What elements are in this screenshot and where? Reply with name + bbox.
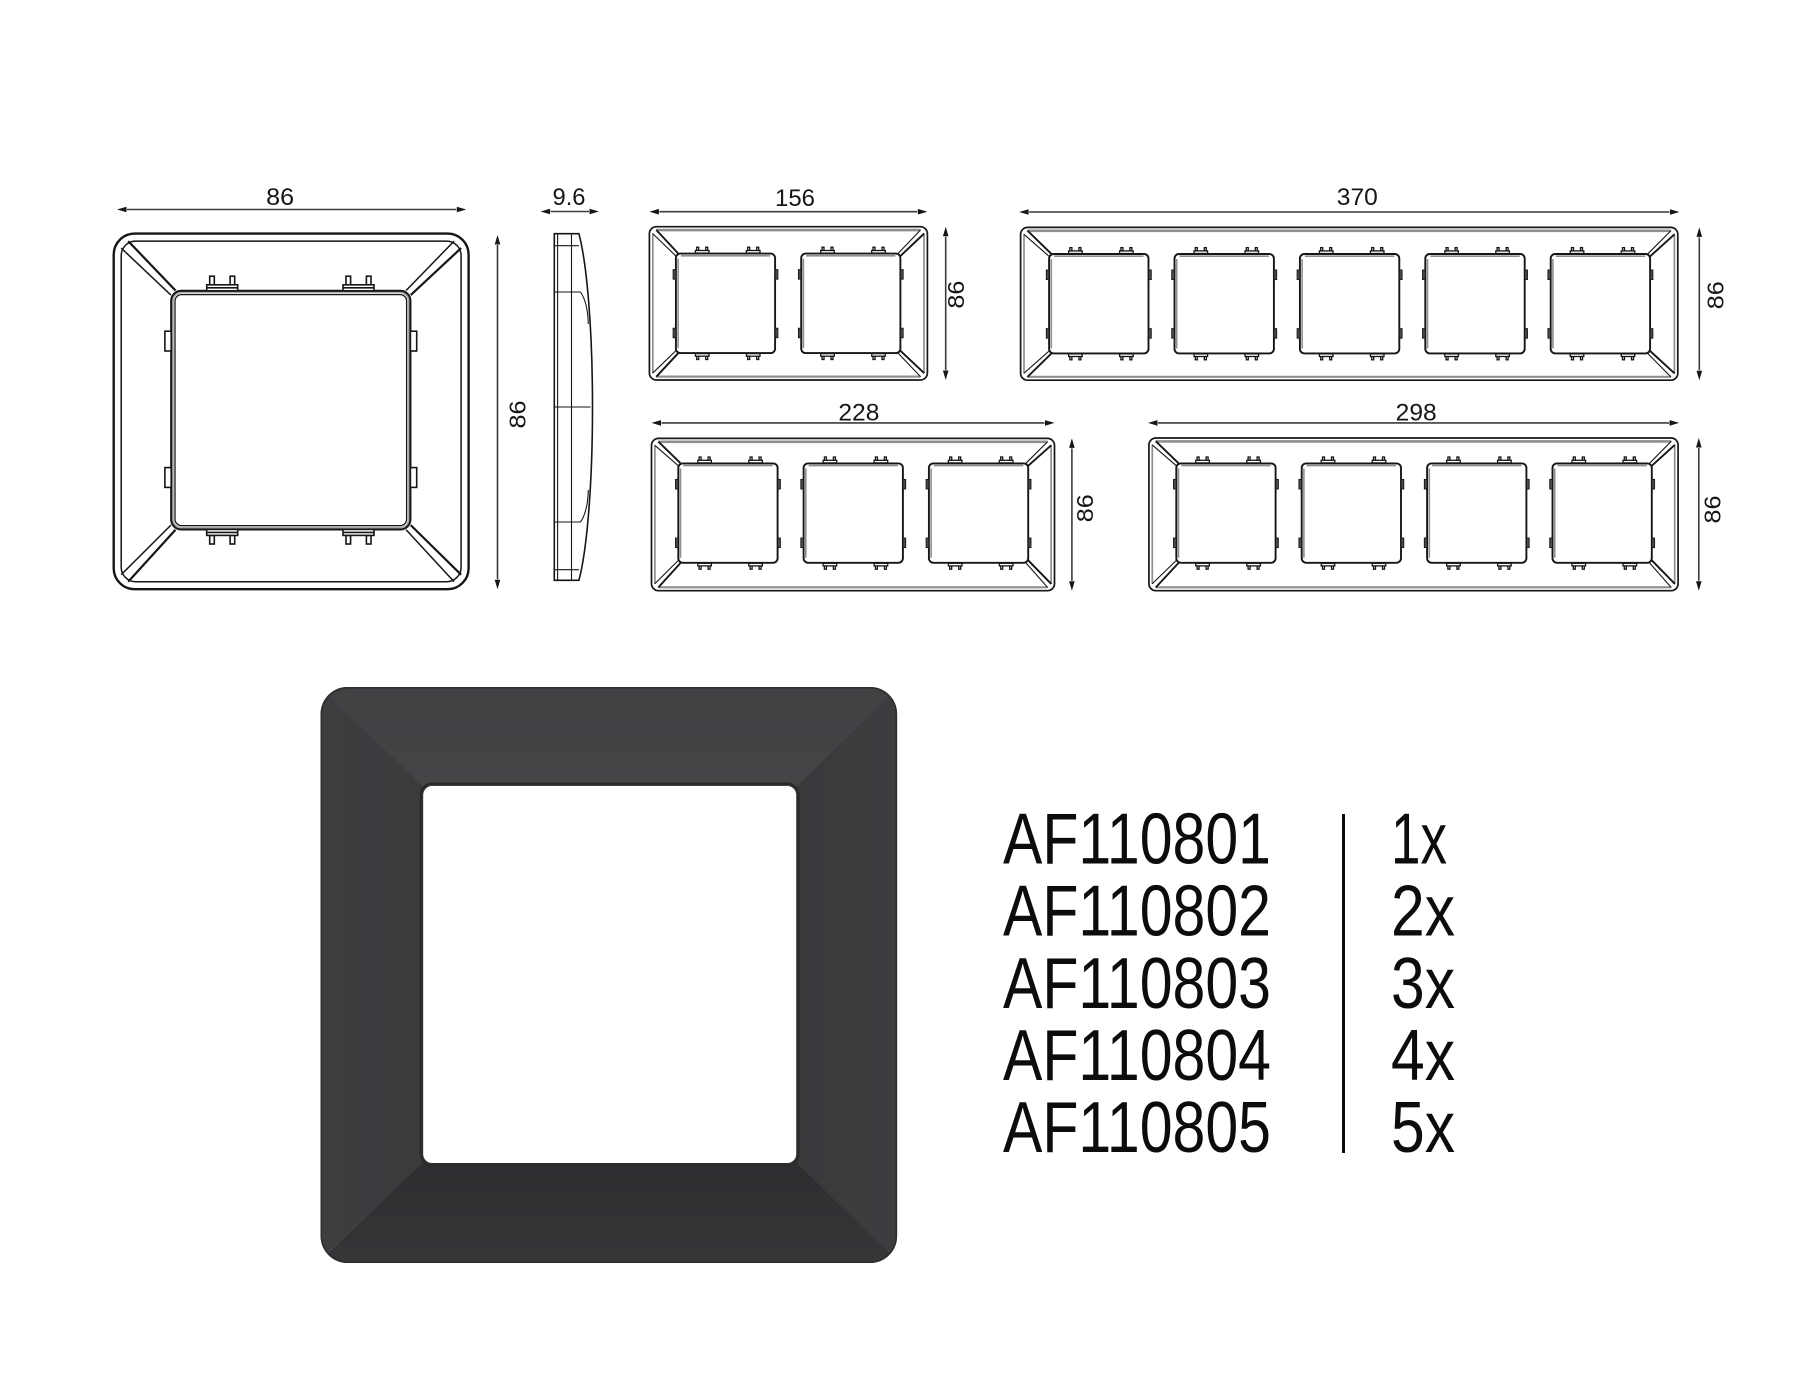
svg-text:86: 86 bbox=[505, 401, 531, 429]
svg-text:86: 86 bbox=[1703, 281, 1729, 309]
svg-text:86: 86 bbox=[1072, 494, 1098, 522]
svg-text:2x: 2x bbox=[1391, 871, 1455, 952]
svg-text:AF110803: AF110803 bbox=[1003, 943, 1271, 1024]
svg-text:370: 370 bbox=[1337, 184, 1378, 211]
svg-text:228: 228 bbox=[838, 399, 879, 426]
svg-text:156: 156 bbox=[775, 185, 815, 212]
svg-text:86: 86 bbox=[1700, 496, 1726, 524]
svg-text:AF110805: AF110805 bbox=[1003, 1087, 1271, 1168]
svg-text:AF110804: AF110804 bbox=[1003, 1015, 1271, 1096]
svg-text:86: 86 bbox=[943, 281, 969, 309]
svg-text:86: 86 bbox=[266, 184, 294, 211]
svg-text:1x: 1x bbox=[1391, 799, 1447, 880]
svg-text:298: 298 bbox=[1396, 399, 1437, 426]
svg-text:9.6: 9.6 bbox=[553, 184, 586, 211]
svg-text:AF110801: AF110801 bbox=[1003, 799, 1271, 880]
svg-text:3x: 3x bbox=[1391, 943, 1455, 1024]
svg-text:5x: 5x bbox=[1391, 1087, 1455, 1168]
svg-text:4x: 4x bbox=[1391, 1015, 1455, 1096]
svg-text:AF110802: AF110802 bbox=[1003, 871, 1271, 952]
